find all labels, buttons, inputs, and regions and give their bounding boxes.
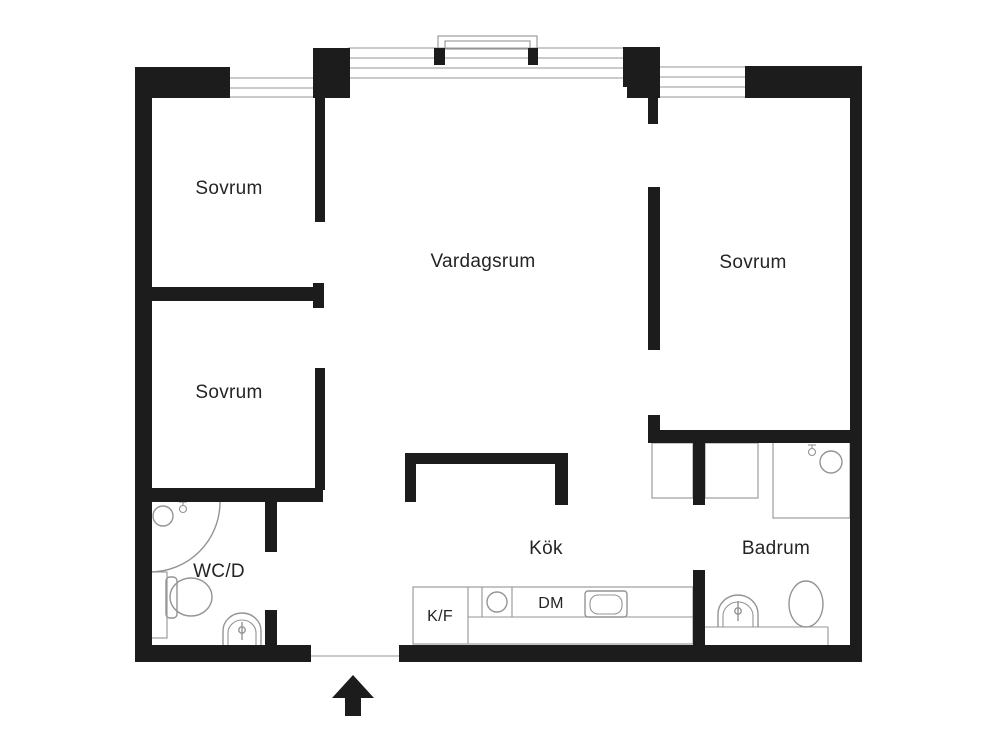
kitchen-hob-circle	[487, 592, 507, 612]
wall-bedroom-divider-notch	[313, 283, 324, 308]
entrance-arrow-icon	[332, 675, 374, 716]
room-label-living-room: Vardagsrum	[430, 251, 535, 273]
wall-top-pillar-left	[313, 48, 350, 98]
wall-top-right-block	[745, 66, 862, 98]
wall-top-left-block	[135, 67, 230, 98]
wall-bathroom-left-upper	[693, 443, 705, 505]
wall-bedroom-divider	[152, 287, 323, 301]
wc-faucet-icon	[179, 502, 187, 513]
balcony-pillar-b	[528, 48, 538, 65]
room-label-wc: WC/D	[193, 561, 245, 583]
window-right-bedroom	[660, 67, 745, 97]
wall-kitchen-peninsula-right	[555, 453, 568, 505]
closet-left	[652, 443, 693, 498]
wall-livingroom-right	[648, 187, 660, 350]
wall-bathroom-top	[648, 430, 855, 443]
closet-right	[705, 443, 758, 498]
wall-wc-right-lower	[265, 610, 277, 645]
room-label-kitchen: Kök	[529, 538, 563, 560]
wc-sink	[223, 613, 261, 646]
wall-outer-left	[135, 67, 152, 662]
window-living-room	[348, 48, 623, 78]
wall-bedroom2-right	[315, 368, 325, 490]
bathroom-faucet-icon	[808, 445, 816, 456]
wall-bathroom-left-lower	[693, 570, 705, 647]
bathroom-counter-line	[705, 627, 828, 645]
room-label-bedroom-mid-left: Sovrum	[195, 382, 262, 404]
wall-bottom-right	[399, 645, 862, 662]
wall-kitchen-peninsula-top	[405, 453, 568, 464]
balcony-outline	[438, 36, 537, 49]
balcony-pillar-a	[434, 48, 445, 65]
appliance-label-dishwasher: DM	[538, 595, 563, 613]
wall-bedroom1-right	[315, 98, 325, 222]
room-label-bedroom-right: Sovrum	[719, 252, 786, 274]
wall-kitchen-peninsula-left	[405, 453, 416, 502]
wall-wc-top	[152, 488, 323, 502]
bathroom-shower	[773, 442, 850, 518]
kitchen-sink	[585, 591, 627, 617]
wall-wc-right-upper	[265, 502, 277, 552]
bathroom-toilet	[789, 581, 823, 627]
room-label-bathroom: Badrum	[742, 538, 810, 560]
window-left-bedroom	[230, 78, 313, 97]
wall-outer-right	[850, 66, 862, 662]
wc-toilet	[166, 577, 212, 618]
appliance-label-fridge-freezer: K/F	[427, 608, 453, 626]
wall-top-mid-block-lower	[627, 80, 660, 98]
wall-top-mid-stub	[648, 98, 658, 124]
floor-plan: Sovrum Vardagsrum Sovrum Sovrum WC/D Kök…	[0, 0, 1000, 750]
room-label-bedroom-top-left: Sovrum	[195, 178, 262, 200]
wc-shower-drain	[153, 506, 173, 526]
bathroom-sink	[718, 595, 758, 627]
wall-bottom-left	[135, 645, 311, 662]
